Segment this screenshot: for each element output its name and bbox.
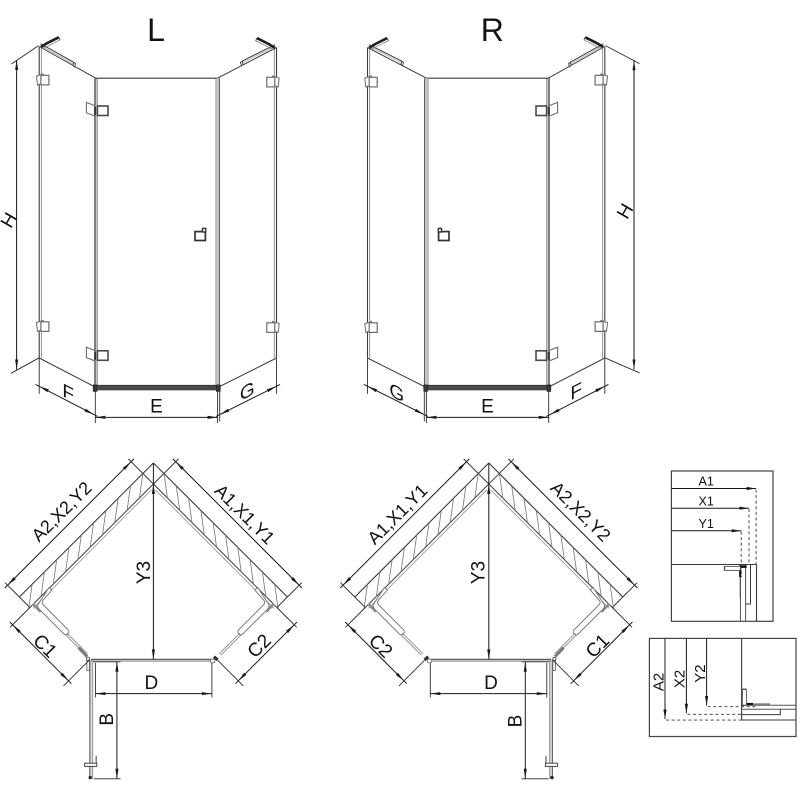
svg-text:A1: A1 xyxy=(699,475,714,489)
svg-text:L: L xyxy=(147,12,165,48)
svg-text:R: R xyxy=(481,12,504,48)
svg-text:Y1: Y1 xyxy=(699,517,714,531)
svg-text:B: B xyxy=(97,713,118,726)
svg-text:E: E xyxy=(150,396,163,417)
svg-text:X2: X2 xyxy=(672,670,689,688)
svg-text:X1: X1 xyxy=(699,494,714,508)
svg-text:B: B xyxy=(506,715,527,728)
svg-text:D: D xyxy=(144,673,158,694)
svg-text:Y3: Y3 xyxy=(134,561,155,584)
svg-text:E: E xyxy=(481,396,494,417)
svg-text:A2: A2 xyxy=(650,673,667,691)
svg-text:Y2: Y2 xyxy=(692,664,709,682)
svg-text:D: D xyxy=(484,673,498,694)
svg-text:Y3: Y3 xyxy=(468,561,489,584)
